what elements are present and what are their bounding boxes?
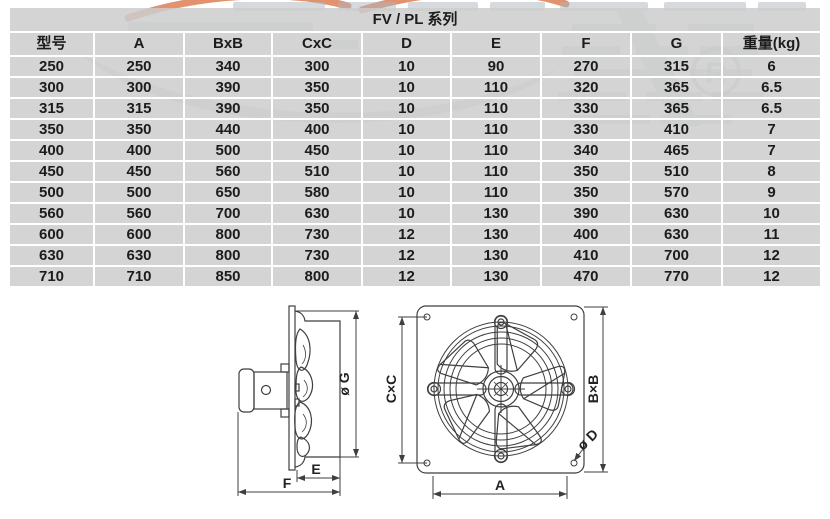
table-cell: 500: [185, 141, 273, 162]
motor-hole: [262, 386, 271, 395]
dim-label-g: ø G: [336, 372, 352, 395]
table-cell: 510: [273, 162, 363, 183]
table-cell: 560: [95, 204, 185, 225]
table-row: 350350440400101103304107: [10, 120, 820, 141]
header-cell: F: [542, 33, 632, 57]
table-cell: 10: [363, 78, 452, 99]
table-cell: 390: [185, 78, 273, 99]
table-cell: 850: [185, 267, 273, 288]
table-cell: 400: [95, 141, 185, 162]
table-cell: 770: [632, 267, 723, 288]
table-cell: 580: [273, 183, 363, 204]
table-cell: 90: [452, 57, 542, 78]
table-cell: 110: [452, 120, 542, 141]
table-cell: 570: [632, 183, 723, 204]
table-cell: 110: [452, 183, 542, 204]
table-cell: 600: [95, 225, 185, 246]
dim-label-e: E: [311, 461, 320, 477]
table-cell: 450: [273, 141, 363, 162]
table-row: 500500650580101103505709: [10, 183, 820, 204]
table-cell: 130: [452, 246, 542, 267]
table-cell: 330: [542, 99, 632, 120]
table-cell: 6.5: [723, 99, 820, 120]
table-cell: 12: [363, 246, 452, 267]
table-cell: 10: [723, 204, 820, 225]
header-cell: A: [95, 33, 185, 57]
table-cell: 410: [632, 120, 723, 141]
table-row: 400400500450101103404657: [10, 141, 820, 162]
table-cell: 110: [452, 141, 542, 162]
table-cell: 130: [452, 267, 542, 288]
table-cell: 465: [632, 141, 723, 162]
spec-table: FV / PL 系列 型号ABxBCxCDEFG重量(kg) 250250340…: [10, 8, 820, 288]
table-row: 300300390350101103203656.5: [10, 78, 820, 99]
table-cell: 110: [452, 162, 542, 183]
table-cell: 250: [10, 57, 95, 78]
table-cell: 10: [363, 162, 452, 183]
table-cell: 7: [723, 120, 820, 141]
table-cell: 315: [10, 99, 95, 120]
table-cell: 365: [632, 99, 723, 120]
table-cell: 315: [632, 57, 723, 78]
table-row: 315315390350101103303656.5: [10, 99, 820, 120]
table-cell: 470: [542, 267, 632, 288]
page: { "page": { "title_row": "FV / PL 系列" },…: [0, 0, 830, 519]
table-header-row: 型号ABxBCxCDEFG重量(kg): [10, 33, 820, 57]
table-cell: 12: [363, 225, 452, 246]
table-cell: 350: [273, 78, 363, 99]
table-cell: 500: [95, 183, 185, 204]
table-cell: 800: [185, 246, 273, 267]
table-cell: 300: [273, 57, 363, 78]
table-row: 6306308007301213041070012: [10, 246, 820, 267]
table-cell: 9: [723, 183, 820, 204]
table-cell: 350: [273, 99, 363, 120]
table-cell: 12: [363, 267, 452, 288]
dim-label-f: F: [283, 475, 292, 491]
table-cell: 800: [185, 225, 273, 246]
header-cell: E: [452, 33, 542, 57]
table-row: 6006008007301213040063011: [10, 225, 820, 246]
hub: [477, 365, 525, 413]
table-cell: 600: [10, 225, 95, 246]
table-cell: 6: [723, 57, 820, 78]
table-cell: 340: [185, 57, 273, 78]
dim-label-bxb: B×B: [585, 375, 601, 403]
table-cell: 400: [273, 120, 363, 141]
header-cell: BxB: [185, 33, 273, 57]
table-cell: 130: [452, 204, 542, 225]
table-cell: 630: [10, 246, 95, 267]
table-cell: 7: [723, 141, 820, 162]
table-cell: 350: [542, 183, 632, 204]
table-cell: 630: [632, 204, 723, 225]
table-row: 450450560510101103505108: [10, 162, 820, 183]
table-cell: 400: [542, 225, 632, 246]
table-cell: 350: [542, 162, 632, 183]
table-title: FV / PL 系列: [10, 8, 820, 33]
header-cell: D: [363, 33, 452, 57]
table-cell: 330: [542, 120, 632, 141]
table-cell: 12: [723, 267, 820, 288]
table-cell: 300: [10, 78, 95, 99]
table-cell: 410: [542, 246, 632, 267]
table-cell: 350: [10, 120, 95, 141]
table-cell: 340: [542, 141, 632, 162]
header-cell: 重量(kg): [723, 33, 820, 57]
table-cell: 300: [95, 78, 185, 99]
dim-label-a: A: [495, 477, 505, 493]
table-cell: 130: [452, 225, 542, 246]
table-cell: 390: [542, 204, 632, 225]
table-cell: 500: [10, 183, 95, 204]
table-cell: 8: [723, 162, 820, 183]
table-cell: 10: [363, 99, 452, 120]
header-cell: CxC: [273, 33, 363, 57]
table-body: 2502503403001090270315630030039035010110…: [10, 57, 820, 288]
table-cell: 10: [363, 57, 452, 78]
table-cell: 730: [273, 246, 363, 267]
table-cell: 450: [95, 162, 185, 183]
table-cell: 450: [10, 162, 95, 183]
table-cell: 250: [95, 57, 185, 78]
bellmouth-duct: [295, 311, 340, 467]
table-cell: 110: [452, 99, 542, 120]
fan-side-view: ø G E F: [238, 306, 359, 496]
table-cell: 440: [185, 120, 273, 141]
mounting-plate-edge: [289, 306, 295, 470]
table-cell: 10: [363, 120, 452, 141]
header-cell: G: [632, 33, 723, 57]
table-cell: 10: [363, 204, 452, 225]
table-cell: 320: [542, 78, 632, 99]
table-cell: 11: [723, 225, 820, 246]
table-cell: 10: [363, 141, 452, 162]
table-cell: 365: [632, 78, 723, 99]
table-cell: 730: [273, 225, 363, 246]
table-row: 25025034030010902703156: [10, 57, 820, 78]
header-cell: 型号: [10, 33, 95, 57]
table-cell: 630: [273, 204, 363, 225]
table-cell: 650: [185, 183, 273, 204]
table-cell: 10: [363, 183, 452, 204]
table-cell: 700: [632, 246, 723, 267]
table-cell: 12: [723, 246, 820, 267]
table-cell: 315: [95, 99, 185, 120]
table-row: 5605607006301013039063010: [10, 204, 820, 225]
table-cell: 6.5: [723, 78, 820, 99]
impeller-side: [295, 329, 313, 456]
table-cell: 630: [632, 225, 723, 246]
table-cell: 710: [10, 267, 95, 288]
dim-label-d: ø D: [574, 426, 601, 453]
table-cell: 350: [95, 120, 185, 141]
table-cell: 400: [10, 141, 95, 162]
front-view-dimensions: [398, 307, 608, 499]
table-cell: 710: [95, 267, 185, 288]
table-cell: 700: [185, 204, 273, 225]
table-cell: 110: [452, 78, 542, 99]
table-cell: 630: [95, 246, 185, 267]
table-cell: 560: [185, 162, 273, 183]
table-cell: 560: [10, 204, 95, 225]
table-cell: 390: [185, 99, 273, 120]
table-cell: 270: [542, 57, 632, 78]
dim-label-cxc: C×C: [383, 375, 399, 403]
table-cell: 800: [273, 267, 363, 288]
fan-front-view: B×B C×C A ø D: [383, 306, 608, 499]
motor-endcap: [239, 369, 254, 412]
table-cell: 510: [632, 162, 723, 183]
table-row: 7107108508001213047077012: [10, 267, 820, 288]
